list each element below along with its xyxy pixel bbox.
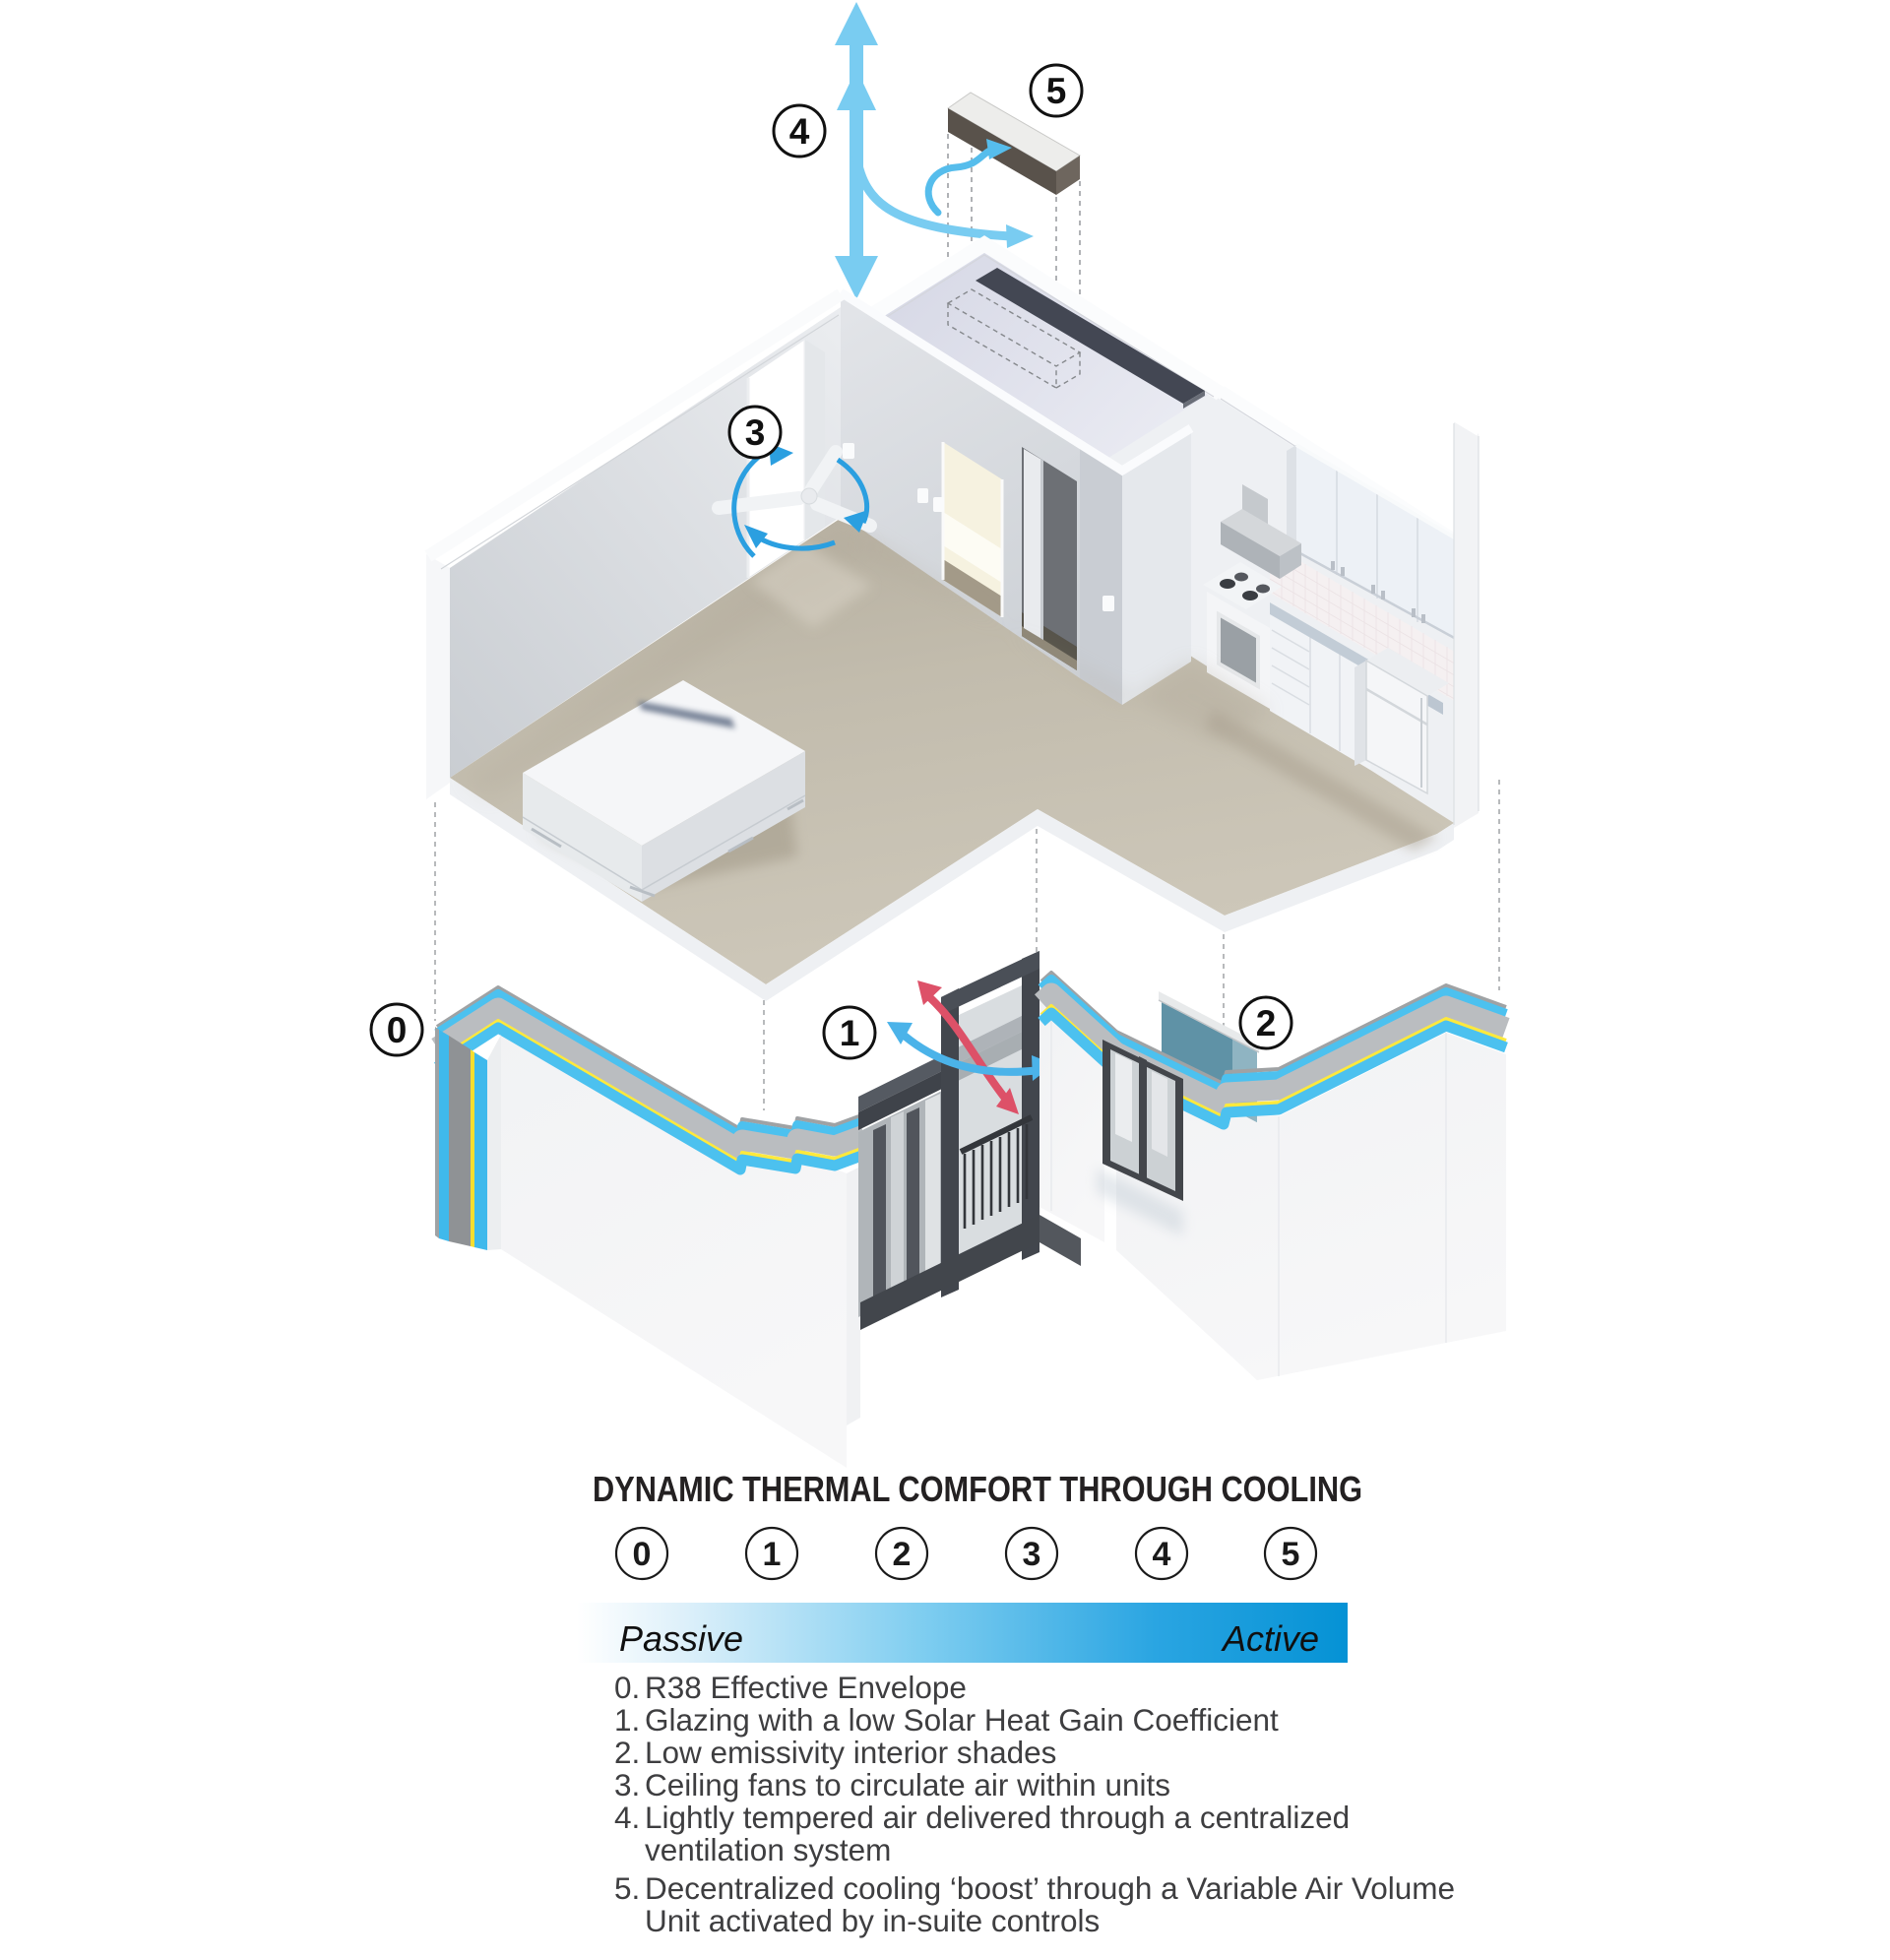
svg-text:1.: 1.	[614, 1702, 640, 1738]
svg-text:2: 2	[893, 1536, 912, 1573]
svg-text:5.: 5.	[614, 1870, 640, 1906]
svg-text:R38 Effective Envelope: R38 Effective Envelope	[645, 1670, 967, 1705]
svg-text:2.: 2.	[614, 1735, 640, 1770]
svg-text:1: 1	[840, 1013, 860, 1053]
svg-text:Decentralized cooling ‘boost’: Decentralized cooling ‘boost’ through a …	[645, 1870, 1455, 1906]
svg-text:2: 2	[1256, 1003, 1277, 1043]
svg-text:3: 3	[1023, 1536, 1041, 1573]
svg-text:5: 5	[1282, 1536, 1300, 1573]
svg-text:Active: Active	[1221, 1618, 1319, 1659]
svg-text:3.: 3.	[614, 1767, 640, 1802]
svg-text:ventilation system: ventilation system	[645, 1832, 891, 1867]
svg-text:Ceiling fans to circulate air: Ceiling fans to circulate air within uni…	[645, 1767, 1170, 1802]
svg-text:DYNAMIC THERMAL COMFORT THROUG: DYNAMIC THERMAL COMFORT THROUGH COOLING	[593, 1469, 1362, 1509]
svg-text:5: 5	[1046, 71, 1067, 111]
svg-text:Glazing with a low Solar Heat: Glazing with a low Solar Heat Gain Coeff…	[645, 1702, 1279, 1738]
svg-text:3: 3	[745, 412, 766, 453]
svg-text:4.: 4.	[614, 1800, 640, 1835]
svg-text:Unit activated by in-suite con: Unit activated by in-suite controls	[645, 1903, 1100, 1938]
svg-text:Lightly tempered air delivered: Lightly tempered air delivered through a…	[645, 1800, 1350, 1835]
svg-text:Passive: Passive	[619, 1618, 743, 1659]
svg-text:4: 4	[789, 111, 810, 152]
svg-text:Low emissivity interior shades: Low emissivity interior shades	[645, 1735, 1056, 1770]
svg-text:4: 4	[1153, 1536, 1171, 1573]
svg-text:0.: 0.	[614, 1670, 640, 1705]
svg-text:0: 0	[387, 1010, 408, 1050]
svg-text:1: 1	[763, 1536, 782, 1573]
svg-text:0: 0	[633, 1536, 652, 1573]
